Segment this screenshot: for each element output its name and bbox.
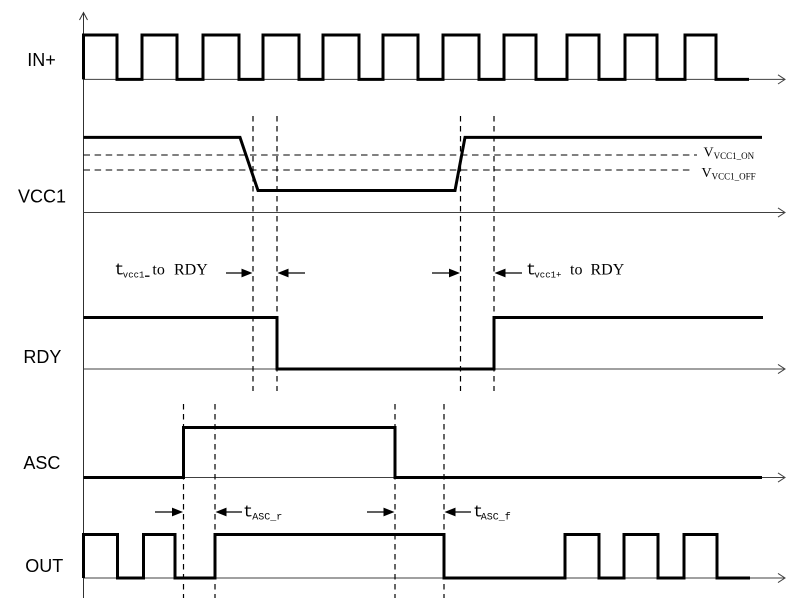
svg-text:RDY: RDY [174, 262, 208, 279]
svg-text:to: to [152, 262, 164, 279]
svg-text:ASC: ASC [23, 453, 60, 473]
svg-text:OUT: OUT [25, 556, 63, 576]
svg-text:vcc1: vcc1 [123, 271, 145, 281]
svg-text:ASC_f: ASC_f [481, 512, 511, 524]
svg-text:RDY: RDY [591, 262, 625, 279]
svg-text:RDY: RDY [23, 347, 61, 367]
svg-text:VCC1: VCC1 [18, 187, 66, 207]
svg-text:ASC_r: ASC_r [252, 513, 282, 524]
svg-text:IN+: IN+ [27, 50, 56, 70]
svg-text:vcc1+: vcc1+ [534, 271, 561, 281]
svg-text:to: to [570, 262, 582, 279]
